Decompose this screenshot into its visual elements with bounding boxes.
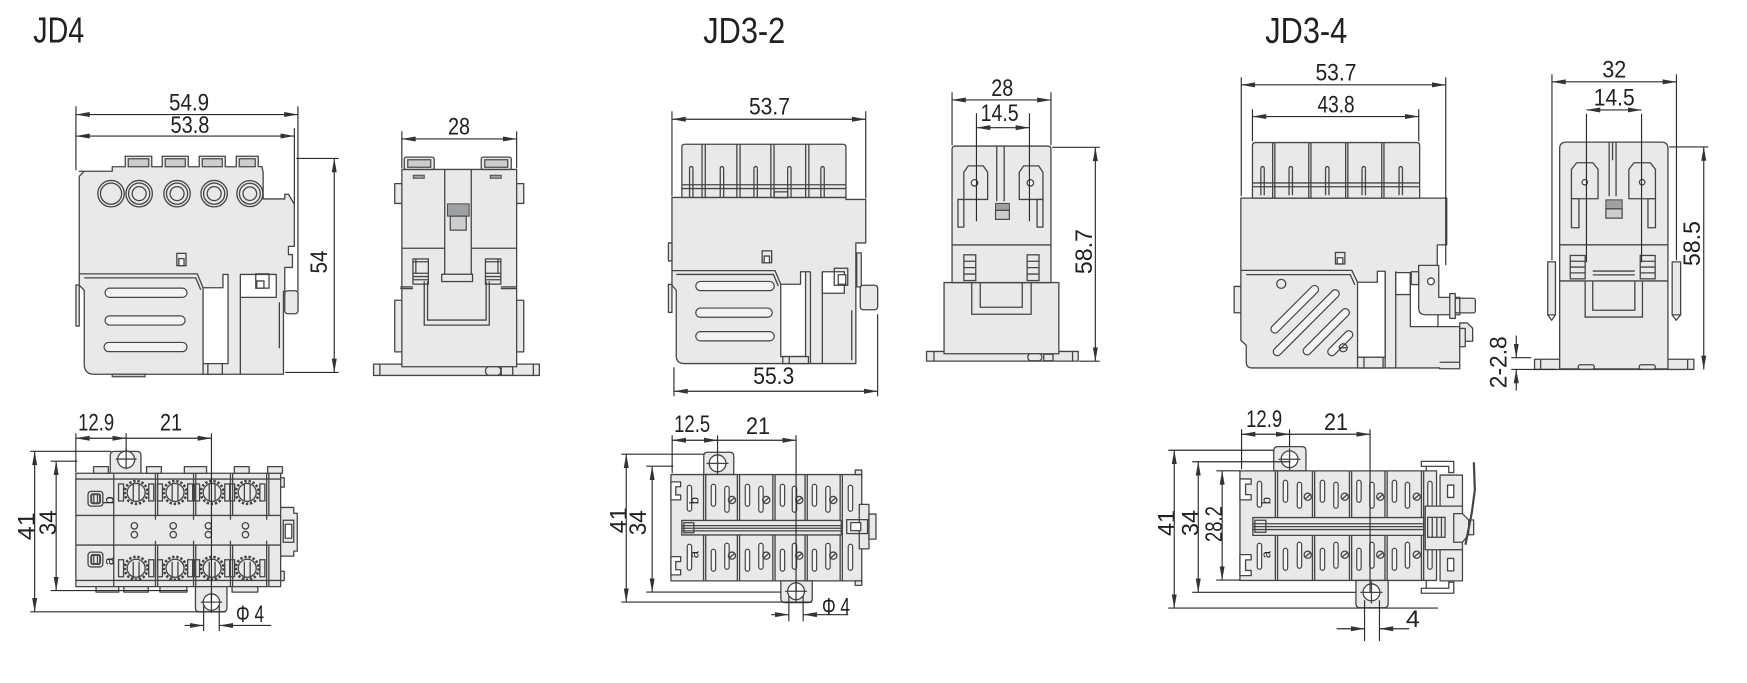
svg-text:54: 54 xyxy=(306,250,333,273)
svg-text:JD4: JD4 xyxy=(33,9,84,50)
svg-text:32: 32 xyxy=(1602,56,1626,83)
svg-text:Φ 4: Φ 4 xyxy=(822,594,850,621)
svg-text:JD3-4: JD3-4 xyxy=(1265,10,1347,51)
svg-text:43.8: 43.8 xyxy=(1318,91,1355,118)
svg-text:a: a xyxy=(686,550,701,558)
svg-text:21: 21 xyxy=(746,413,770,440)
svg-text:b: b xyxy=(1258,497,1273,504)
svg-text:12.5: 12.5 xyxy=(674,411,710,438)
svg-text:21: 21 xyxy=(160,410,182,437)
svg-text:JD3-2: JD3-2 xyxy=(703,10,785,51)
svg-text:a: a xyxy=(1258,550,1273,558)
svg-text:28.2: 28.2 xyxy=(1201,506,1228,542)
svg-text:58.5: 58.5 xyxy=(1679,221,1706,266)
svg-text:Φ 4: Φ 4 xyxy=(236,601,264,628)
svg-text:b: b xyxy=(100,496,116,504)
svg-text:12.9: 12.9 xyxy=(78,410,114,437)
svg-text:34: 34 xyxy=(35,510,62,535)
svg-text:28: 28 xyxy=(991,75,1013,102)
svg-text:34: 34 xyxy=(625,510,652,535)
svg-text:58.7: 58.7 xyxy=(1071,229,1098,274)
svg-text:14.5: 14.5 xyxy=(981,100,1019,127)
svg-text:55.3: 55.3 xyxy=(753,363,794,390)
svg-text:21: 21 xyxy=(1324,409,1348,436)
svg-text:a: a xyxy=(100,557,116,565)
svg-text:14.5: 14.5 xyxy=(1594,85,1635,112)
svg-text:2-2.8: 2-2.8 xyxy=(1485,336,1512,388)
svg-text:28: 28 xyxy=(448,114,470,141)
svg-text:b: b xyxy=(686,497,701,504)
svg-text:12.9: 12.9 xyxy=(1246,406,1282,433)
svg-text:53.7: 53.7 xyxy=(1315,59,1356,86)
svg-text:53.7: 53.7 xyxy=(749,93,790,120)
svg-text:41: 41 xyxy=(1153,510,1180,536)
svg-text:53.8: 53.8 xyxy=(170,112,209,139)
